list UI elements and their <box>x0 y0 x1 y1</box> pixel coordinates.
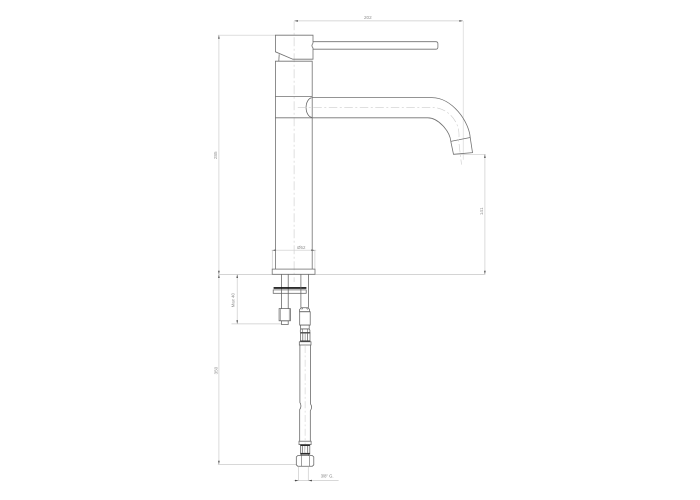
svg-text:350: 350 <box>213 366 218 374</box>
svg-text:Max 40: Max 40 <box>231 292 236 307</box>
svg-text:202: 202 <box>364 15 372 20</box>
svg-text:285: 285 <box>213 151 218 159</box>
svg-text:Ø52: Ø52 <box>297 245 306 250</box>
svg-text:3/8" G.: 3/8" G. <box>321 474 334 479</box>
svg-text:141: 141 <box>479 207 484 215</box>
